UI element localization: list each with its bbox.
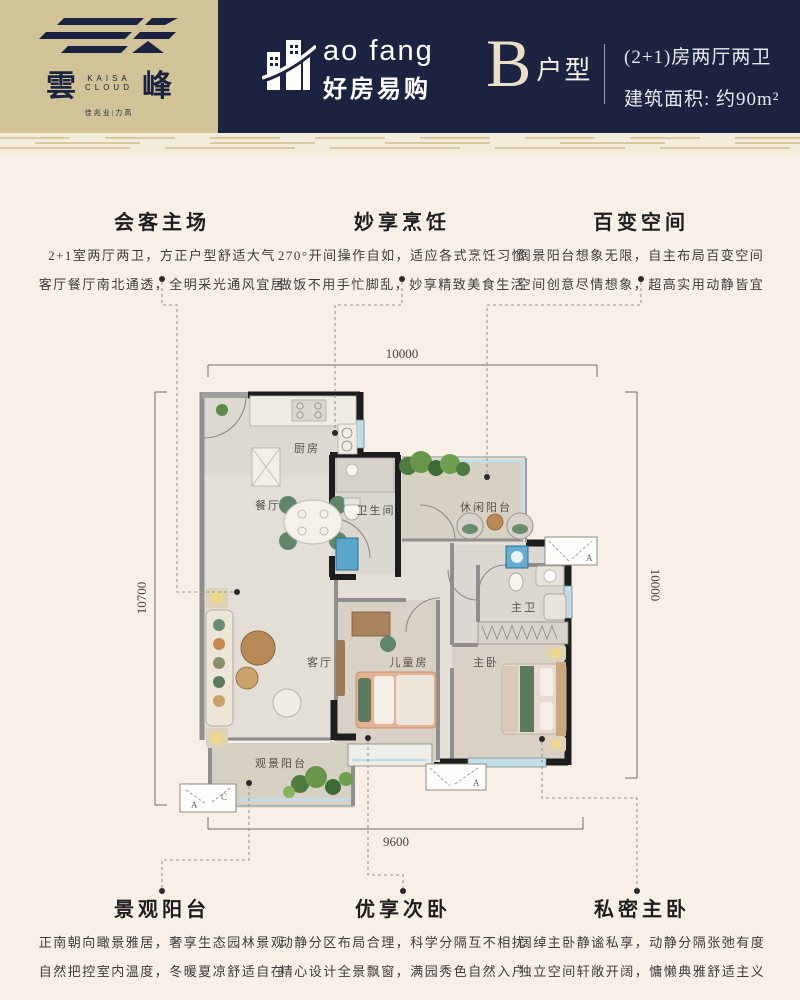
room-label-bathroom: 卫生间 bbox=[357, 503, 396, 517]
dim-top: 10000 bbox=[386, 346, 419, 361]
ac-label: A bbox=[473, 778, 480, 788]
ac-label: A bbox=[191, 800, 198, 810]
ac-label: C bbox=[221, 792, 227, 802]
dim-right: 10000 bbox=[648, 569, 663, 602]
ac-box-bottom-left: A C bbox=[180, 784, 236, 812]
room-label-kitchen: 厨房 bbox=[294, 442, 320, 455]
room-label-dining: 餐厅 bbox=[255, 498, 281, 512]
dim-bottom: 9600 bbox=[383, 834, 409, 849]
room-label-view-balcony: 观景阳台 bbox=[255, 756, 307, 770]
floorplan: A A A C 厨房 餐厅 卫生间 休闲阳台 主卫 客厅 儿童房 主卧 bbox=[0, 0, 800, 1000]
dim-left: 10700 bbox=[134, 582, 149, 615]
room-label-master-bath: 主卫 bbox=[511, 601, 537, 614]
room-label-leisure-balcony: 休闲阳台 bbox=[460, 500, 512, 514]
room-label-kids-room: 儿童房 bbox=[390, 655, 429, 669]
room-label-master-bedroom: 主卧 bbox=[473, 656, 499, 669]
ac-box-bottom-middle: A bbox=[426, 764, 486, 790]
ac-box-top-right: A bbox=[545, 537, 597, 565]
room-label-living: 客厅 bbox=[307, 655, 333, 669]
ac-label: A bbox=[586, 553, 593, 563]
flyer-page: 雲 KAISA CLOUD 峰 佳兆业|力高 bbox=[0, 0, 800, 1000]
